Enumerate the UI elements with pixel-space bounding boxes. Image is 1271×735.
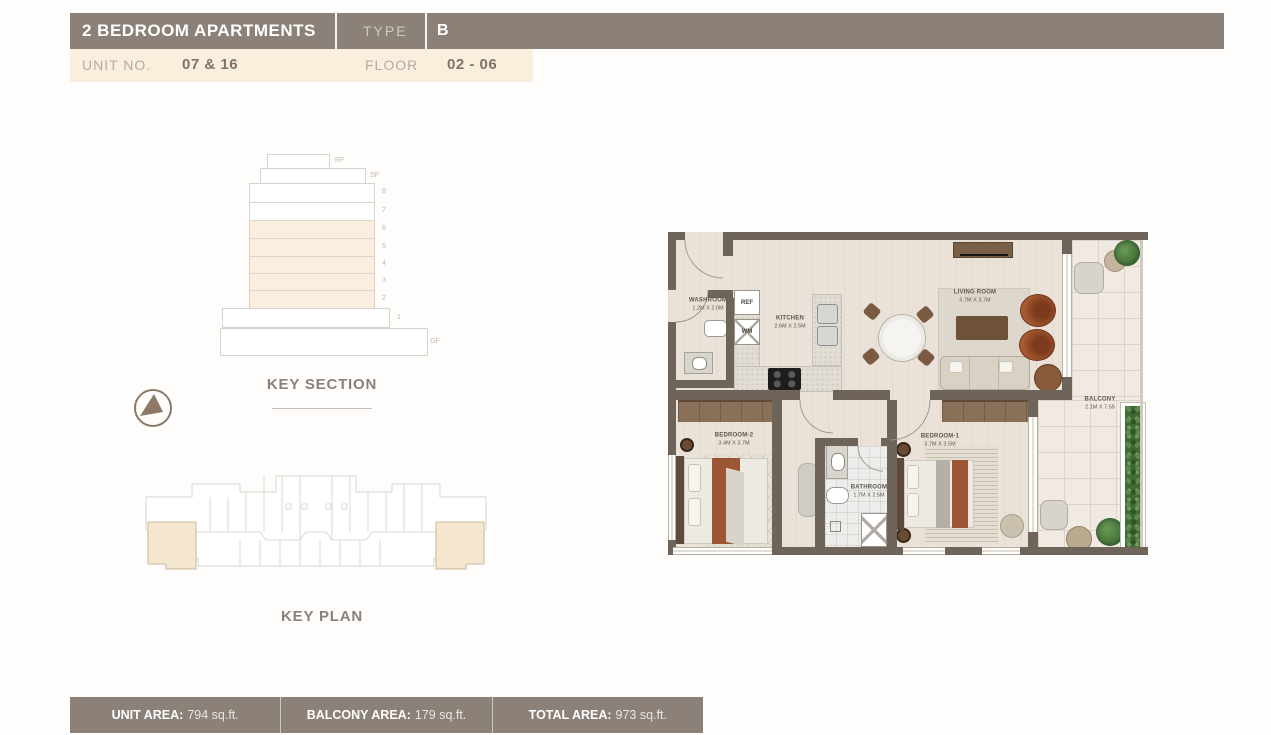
room-label-living-room: LIVING ROOM 5.7M X 3.7M bbox=[954, 290, 997, 305]
room-label-bedroom2: BEDROOM-2 3.4M X 3.7M bbox=[715, 433, 753, 448]
balcony-area-value: 179 sq.ft. bbox=[415, 708, 466, 722]
key-plan-title: KEY PLAN bbox=[281, 608, 363, 625]
floor-tag: 1 bbox=[397, 314, 401, 321]
floor-3 bbox=[250, 274, 374, 291]
header-bar: 2 BEDROOM APARTMENTS TYPE B bbox=[70, 13, 1224, 49]
room-label-bedroom1: BEDROOM-1 3.7M X 3.5M bbox=[921, 434, 959, 449]
floor-tag: 3 bbox=[382, 277, 386, 284]
floor-8 bbox=[250, 184, 374, 203]
floor-6 bbox=[250, 221, 374, 239]
floor-tag: 4 bbox=[382, 260, 386, 267]
balcony-area-label: BALCONY AREA: bbox=[307, 708, 411, 722]
floor-5 bbox=[250, 239, 374, 257]
total-area-label: TOTAL AREA: bbox=[529, 708, 612, 722]
room-label-kitchen: KITCHEN 2.6M X 2.5M bbox=[774, 316, 805, 331]
header-divider bbox=[335, 13, 337, 49]
unit-area-value: 794 sq.ft. bbox=[187, 708, 238, 722]
compass-north-icon bbox=[132, 387, 176, 431]
floor-tag: 6 bbox=[382, 225, 386, 232]
key-plan-footprint bbox=[140, 462, 492, 592]
floor-label: FLOOR bbox=[365, 57, 418, 73]
subheader-bar: UNIT NO. 07 & 16 FLOOR 02 - 06 bbox=[70, 49, 533, 82]
key-section-title: KEY SECTION bbox=[267, 376, 377, 393]
floor-tag: SF bbox=[370, 172, 379, 179]
floor-4 bbox=[250, 257, 374, 274]
highlighted-unit-left bbox=[148, 522, 196, 569]
brochure-page: 2 BEDROOM APARTMENTS TYPE B UNIT NO. 07 … bbox=[0, 0, 1271, 735]
total-area-cell: TOTAL AREA: 973 sq.ft. bbox=[492, 697, 703, 733]
floor-tag: 2 bbox=[382, 295, 386, 302]
unit-value: 07 & 16 bbox=[182, 56, 238, 73]
type-label: TYPE bbox=[363, 23, 408, 39]
total-area-value: 973 sq.ft. bbox=[616, 708, 667, 722]
floor-tag: 5 bbox=[382, 243, 386, 250]
key-section-underline bbox=[272, 408, 372, 409]
floor-tag: RF bbox=[335, 157, 344, 164]
unit-area-cell: UNIT AREA: 794 sq.ft. bbox=[70, 697, 280, 733]
floor-value: 02 - 06 bbox=[447, 56, 497, 73]
roof-box bbox=[267, 154, 330, 169]
tower-box bbox=[249, 183, 375, 308]
floor-tag: 7 bbox=[382, 207, 386, 214]
floor-1-box bbox=[222, 308, 390, 328]
room-label-balcony: BALCONY 2.1M X 7.55 bbox=[1084, 397, 1115, 412]
room-label-bathroom: BATHROOM 1.7M X 2.5M bbox=[851, 485, 887, 500]
balcony-area-cell: BALCONY AREA: 179 sq.ft. bbox=[280, 697, 491, 733]
room-label-washroom: WASHROOM 1.2M X 2.0M bbox=[689, 298, 727, 313]
type-value: B bbox=[437, 22, 449, 40]
floor-7 bbox=[250, 203, 374, 221]
floor-2 bbox=[250, 291, 374, 309]
unit-area-label: UNIT AREA: bbox=[112, 708, 184, 722]
sf-box bbox=[260, 168, 366, 184]
gf-box bbox=[220, 328, 428, 356]
floor-tag: GF bbox=[430, 338, 440, 345]
highlighted-unit-right bbox=[436, 522, 484, 569]
header-divider bbox=[425, 13, 427, 49]
page-title: 2 BEDROOM APARTMENTS bbox=[82, 21, 316, 41]
door-arcs bbox=[668, 232, 1148, 555]
unit-label: UNIT NO. bbox=[82, 57, 151, 73]
floor-tag: 8 bbox=[382, 188, 386, 195]
area-summary-bar: UNIT AREA: 794 sq.ft. BALCONY AREA: 179 … bbox=[70, 697, 703, 733]
floor-plan: REF WM bbox=[668, 232, 1148, 555]
